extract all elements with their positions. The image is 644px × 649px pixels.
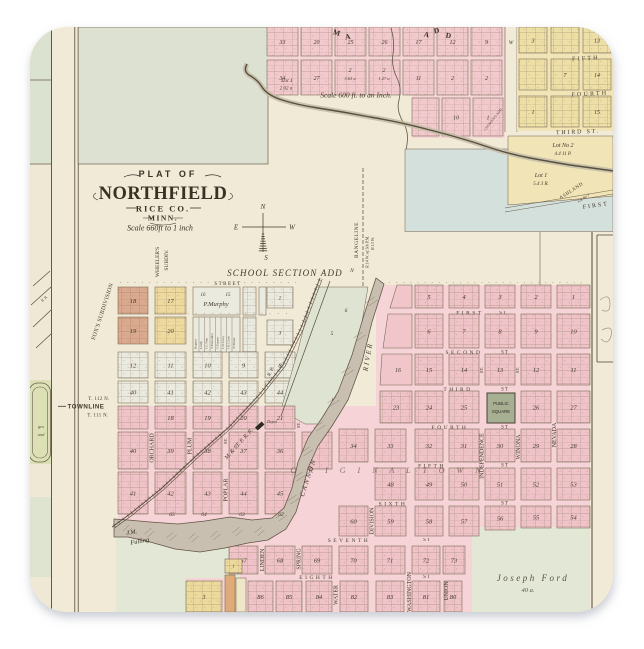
svg-text:P.Murphy: P.Murphy — [202, 301, 228, 308]
svg-text:20: 20 — [240, 415, 247, 422]
svg-text:29: 29 — [533, 443, 540, 450]
svg-text:RICE CO.: RICE CO. — [136, 204, 190, 214]
svg-text:W: W — [509, 40, 514, 46]
svg-text:18: 18 — [130, 298, 137, 305]
svg-text:INDEPENDENCE: INDEPENDENCE — [480, 433, 486, 479]
svg-text:3.63 a: 3.63 a — [344, 76, 356, 81]
svg-text:Joseph Ford: Joseph Ford — [497, 573, 569, 583]
svg-text:WASHINGTON: WASHINGTON — [407, 571, 413, 612]
svg-text:10: 10 — [453, 115, 459, 121]
svg-text:2: 2 — [383, 68, 386, 74]
svg-text:ges: ges — [38, 424, 44, 429]
svg-text:Regney: Regney — [194, 338, 198, 349]
svg-text:FIRST: FIRST — [456, 311, 483, 317]
svg-text:81: 81 — [423, 594, 430, 601]
svg-text:3: 3 — [202, 595, 206, 601]
svg-text:5.4 3 R.: 5.4 3 R. — [533, 182, 549, 187]
svg-text:1: 1 — [532, 110, 535, 116]
svg-text:15: 15 — [426, 367, 433, 374]
svg-text:E: E — [233, 224, 239, 232]
svg-text:17: 17 — [416, 40, 423, 46]
svg-text:ST: ST — [501, 351, 509, 356]
svg-text:63: 63 — [239, 512, 245, 518]
svg-text:J.C.Nutt: J.C.Nutt — [205, 338, 209, 349]
svg-text:3: 3 — [531, 38, 535, 44]
svg-text:20: 20 — [167, 328, 174, 335]
svg-text:16: 16 — [201, 293, 207, 298]
svg-text:ST.: ST. — [296, 422, 301, 428]
svg-text:36: 36 — [276, 448, 284, 455]
svg-text:ST: ST — [501, 464, 509, 469]
svg-text:85: 85 — [286, 594, 293, 601]
svg-text:2 62 a: 2 62 a — [280, 87, 293, 92]
svg-text:ST: ST — [501, 426, 509, 431]
svg-text:19: 19 — [130, 328, 137, 335]
svg-text:SPRING: SPRING — [297, 548, 303, 570]
svg-text:42: 42 — [204, 389, 211, 396]
svg-text:64: 64 — [201, 511, 207, 518]
svg-text:24: 24 — [426, 404, 433, 411]
svg-text:27: 27 — [314, 76, 321, 82]
svg-text:59: 59 — [387, 518, 394, 525]
svg-text:41: 41 — [130, 490, 137, 497]
svg-text:19: 19 — [204, 415, 211, 422]
svg-text:W.Dunn: W.Dunn — [232, 337, 236, 349]
svg-text:FOURTH: FOURTH — [432, 425, 469, 431]
svg-text:83: 83 — [387, 594, 394, 601]
svg-text:12: 12 — [130, 362, 137, 369]
svg-text:31: 31 — [460, 443, 468, 450]
svg-text:25: 25 — [461, 404, 468, 411]
svg-text:SEVENTH: SEVENTH — [328, 538, 371, 544]
svg-text:SECOND: SECOND — [445, 350, 482, 356]
svg-text:LINDEN: LINDEN — [260, 548, 266, 571]
svg-text:Lot 1: Lot 1 — [280, 78, 293, 84]
svg-text:12: 12 — [533, 367, 540, 374]
svg-text:54: 54 — [570, 514, 577, 521]
svg-text:NORTHFIELD: NORTHFIELD — [99, 184, 228, 204]
svg-text:3: 3 — [278, 331, 282, 337]
svg-text:40: 40 — [130, 389, 137, 396]
svg-text:T. 112 N.: T. 112 N. — [88, 397, 109, 402]
svg-text:S: S — [264, 254, 268, 262]
svg-text:SIXTH: SIXTH — [379, 502, 408, 508]
svg-text:2: 2 — [485, 76, 488, 82]
svg-text:23: 23 — [393, 404, 400, 411]
svg-text:ST.: ST. — [479, 367, 484, 373]
svg-text:R.14 W. of 5th P.M.: R.14 W. of 5th P.M. — [365, 236, 370, 269]
svg-text:43: 43 — [204, 490, 211, 497]
svg-text:ST: ST — [423, 538, 431, 543]
svg-text:86: 86 — [257, 594, 264, 601]
svg-text:52: 52 — [533, 481, 540, 488]
svg-text:2: 2 — [279, 296, 282, 302]
svg-text:ST: ST — [499, 311, 507, 316]
svg-text:13: 13 — [497, 367, 504, 374]
svg-text:14: 14 — [594, 72, 600, 79]
svg-text:SQUARE: SQUARE — [492, 409, 510, 414]
svg-text:17: 17 — [167, 298, 174, 305]
svg-text:71: 71 — [387, 557, 394, 564]
svg-text:UNION: UNION — [444, 581, 450, 601]
svg-text:TOWNLINE: TOWNLINE — [68, 404, 105, 411]
svg-text:41: 41 — [167, 389, 174, 396]
svg-text:48: 48 — [387, 481, 394, 488]
svg-text:Scale 660ft to 1 inch: Scale 660ft to 1 inch — [127, 224, 193, 233]
svg-text:10: 10 — [570, 328, 577, 335]
svg-text:15: 15 — [594, 110, 600, 116]
svg-text:N: N — [349, 268, 354, 274]
svg-text:R.13 W.: R.13 W. — [370, 237, 375, 251]
svg-text:Lot 1: Lot 1 — [534, 173, 548, 179]
svg-text:ST.: ST. — [223, 438, 228, 444]
svg-text:69: 69 — [314, 557, 321, 564]
svg-text:N: N — [260, 203, 266, 211]
svg-text:T.Faslender: T.Faslender — [210, 332, 214, 349]
svg-text:73: 73 — [451, 557, 458, 564]
svg-text:56: 56 — [497, 515, 504, 522]
svg-text:ST: ST — [501, 502, 509, 507]
svg-text:34: 34 — [349, 443, 357, 450]
svg-text:WINONA: WINONA — [516, 434, 522, 460]
svg-text:Lindy: Lindy — [199, 341, 203, 349]
svg-text:44: 44 — [240, 490, 247, 497]
svg-text:13: 13 — [594, 38, 600, 44]
svg-text:J.B.Clark: J.B.Clark — [227, 336, 231, 349]
svg-text:80: 80 — [450, 594, 457, 601]
svg-text:60: 60 — [350, 518, 357, 525]
svg-text:1.27 a: 1.27 a — [378, 76, 390, 81]
svg-text:45: 45 — [277, 490, 284, 497]
svg-text:32: 32 — [425, 443, 433, 450]
svg-text:42: 42 — [167, 490, 174, 497]
svg-text:and: and — [38, 432, 46, 437]
svg-text:ORCHARD: ORCHARD — [150, 433, 156, 463]
svg-text:30: 30 — [496, 443, 504, 450]
svg-text:FIFTH: FIFTH — [418, 464, 446, 470]
svg-text:39: 39 — [166, 448, 174, 455]
svg-text:9: 9 — [485, 40, 488, 46]
svg-text:PLUM: PLUM — [188, 437, 194, 454]
svg-text:6: 6 — [345, 308, 348, 314]
svg-text:WHEELER'S: WHEELER'S — [155, 247, 161, 277]
svg-text:ST: ST — [501, 388, 509, 393]
svg-text:NEVADA: NEVADA — [552, 422, 558, 447]
svg-text:1: 1 — [232, 564, 234, 569]
svg-text:51: 51 — [497, 481, 504, 488]
svg-text:Lot No 2: Lot No 2 — [551, 143, 573, 149]
svg-text:62: 62 — [278, 512, 284, 518]
svg-text:53: 53 — [570, 481, 577, 488]
svg-text:33: 33 — [279, 40, 286, 46]
svg-text:11: 11 — [416, 76, 422, 82]
svg-text:PUBLIC: PUBLIC — [493, 401, 509, 406]
svg-text:72: 72 — [423, 557, 430, 564]
svg-text:5: 5 — [331, 331, 334, 337]
svg-text:2: 2 — [451, 76, 454, 82]
svg-text:11: 11 — [167, 362, 173, 369]
svg-text:THIRD: THIRD — [443, 387, 472, 393]
svg-text:55: 55 — [533, 514, 540, 521]
svg-text:S.Topper: S.Topper — [216, 336, 220, 349]
svg-text:21: 21 — [277, 415, 284, 422]
svg-text:28: 28 — [570, 443, 577, 450]
svg-text:J.W.Clary: J.W.Clary — [221, 335, 225, 349]
svg-text:65: 65 — [169, 512, 175, 518]
svg-text:44: 44 — [277, 389, 284, 396]
svg-text:82: 82 — [351, 594, 358, 601]
svg-text:68: 68 — [277, 557, 284, 564]
svg-text:26: 26 — [533, 404, 540, 411]
svg-text:26: 26 — [382, 40, 388, 46]
svg-text:12: 12 — [450, 40, 456, 46]
svg-text:4.4 11 P.: 4.4 11 P. — [554, 152, 571, 157]
svg-text:50: 50 — [461, 481, 468, 488]
svg-text:84: 84 — [316, 594, 323, 601]
svg-text:2: 2 — [349, 68, 352, 74]
svg-text:40 a.: 40 a. — [522, 587, 535, 594]
svg-text:40: 40 — [130, 448, 137, 455]
svg-text:Scale 600 ft. to an Inch.: Scale 600 ft. to an Inch. — [320, 91, 392, 100]
svg-text:1: 1 — [572, 294, 575, 301]
svg-text:EIGHTH: EIGHTH — [299, 575, 334, 581]
svg-text:Depot: Depot — [266, 419, 278, 424]
svg-text:16: 16 — [395, 368, 401, 374]
svg-text:T. 111 N.: T. 111 N. — [87, 414, 108, 419]
svg-text:ST.: ST. — [515, 367, 520, 373]
svg-text:RANGELINE: RANGELINE — [354, 222, 360, 258]
svg-text:43: 43 — [240, 389, 247, 396]
svg-text:POPLAR: POPLAR — [224, 478, 230, 501]
svg-text:70: 70 — [350, 557, 357, 564]
svg-text:WATER: WATER — [334, 585, 340, 605]
svg-text:18: 18 — [167, 415, 174, 422]
svg-text:ST: ST — [423, 575, 431, 580]
svg-text:10: 10 — [204, 362, 211, 369]
svg-text:20: 20 — [314, 40, 320, 46]
svg-text:DIVISION: DIVISION — [370, 507, 376, 534]
svg-text:PLAT OF: PLAT OF — [139, 169, 198, 179]
svg-text:SUBDIV.: SUBDIV. — [164, 249, 170, 271]
svg-text:58: 58 — [426, 518, 433, 525]
svg-text:SCHOOL SECTION ADD: SCHOOL SECTION ADD — [227, 268, 343, 278]
svg-text:14: 14 — [461, 367, 468, 374]
svg-text:27: 27 — [570, 404, 577, 411]
svg-text:O R I G I N A L T O W N: O R I G I N A L T O W N — [290, 466, 485, 475]
svg-text:11: 11 — [570, 367, 576, 374]
svg-text:33: 33 — [387, 444, 394, 450]
svg-text:37: 37 — [239, 448, 247, 455]
svg-text:15: 15 — [226, 293, 232, 298]
svg-text:49: 49 — [426, 481, 433, 488]
svg-text:57: 57 — [461, 518, 468, 525]
